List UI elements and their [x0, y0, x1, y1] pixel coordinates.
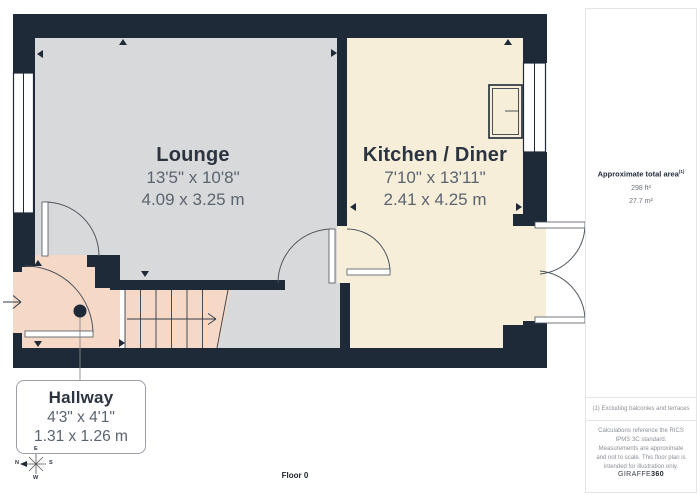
- kitchen-appliance: [489, 85, 522, 138]
- floorplan-page: Lounge 13'5" x 10'8" 4.09 x 3.25 m Kitch…: [0, 0, 700, 495]
- wall-bottom: [13, 348, 547, 368]
- wall-stairs-top: [110, 280, 285, 290]
- wall-right-lower: [523, 321, 547, 348]
- hallway-dim-imperial: 4'3" x 4'1": [47, 408, 115, 427]
- total-area-title: Approximate total area(1): [586, 169, 696, 179]
- total-area-block: Approximate total area(1) 298 ft² 27.7 m…: [586, 169, 696, 205]
- lounge-floor: [35, 38, 337, 282]
- footnote-text: (1) Excluding balconies and terraces: [592, 406, 689, 412]
- floor-fills: [13, 38, 546, 352]
- compass-east-label: E: [34, 446, 38, 452]
- info-sidebar: Approximate total area(1) 298 ft² 27.7 m…: [585, 8, 697, 493]
- brand-logo: GIRAFFE360: [586, 471, 696, 478]
- wall-hallway-left: [22, 255, 35, 267]
- camera-point-icon: [74, 305, 87, 318]
- wall-right-pier-top: [513, 214, 523, 226]
- total-area-m: 27.7 m²: [586, 198, 696, 205]
- compass-north-label: N: [15, 460, 19, 466]
- wall-right-mid: [523, 152, 547, 226]
- wall-right-pier-bottom: [503, 325, 523, 348]
- wall-divider-upper: [337, 38, 347, 226]
- wall-left-mid: [13, 255, 22, 272]
- hallway-dim-metric: 1.31 x 1.26 m: [34, 427, 128, 446]
- compass-icon: [20, 454, 46, 474]
- wall-top: [13, 14, 547, 38]
- floor-label: Floor 0: [255, 471, 335, 480]
- hallway-arrow-right: [119, 339, 125, 347]
- compass-south-label: S: [49, 460, 53, 466]
- wall-divider-lower: [340, 283, 350, 348]
- wall-right-upper: [523, 38, 547, 63]
- hallway-name: Hallway: [49, 388, 114, 408]
- disclaimer-text: Calculations reference the RICS IPMS 3C …: [595, 427, 687, 472]
- window-left: [14, 73, 34, 213]
- footnote-box: (1) Excluding balconies and terraces: [586, 397, 696, 421]
- compass-west-label: W: [33, 475, 38, 481]
- window-right: [524, 63, 546, 152]
- total-area-ft: 298 ft²: [586, 185, 696, 192]
- hallway-label-box: Hallway 4'3" x 4'1" 1.31 x 1.26 m: [16, 380, 146, 454]
- kitchen-doorway-floor: [337, 226, 347, 283]
